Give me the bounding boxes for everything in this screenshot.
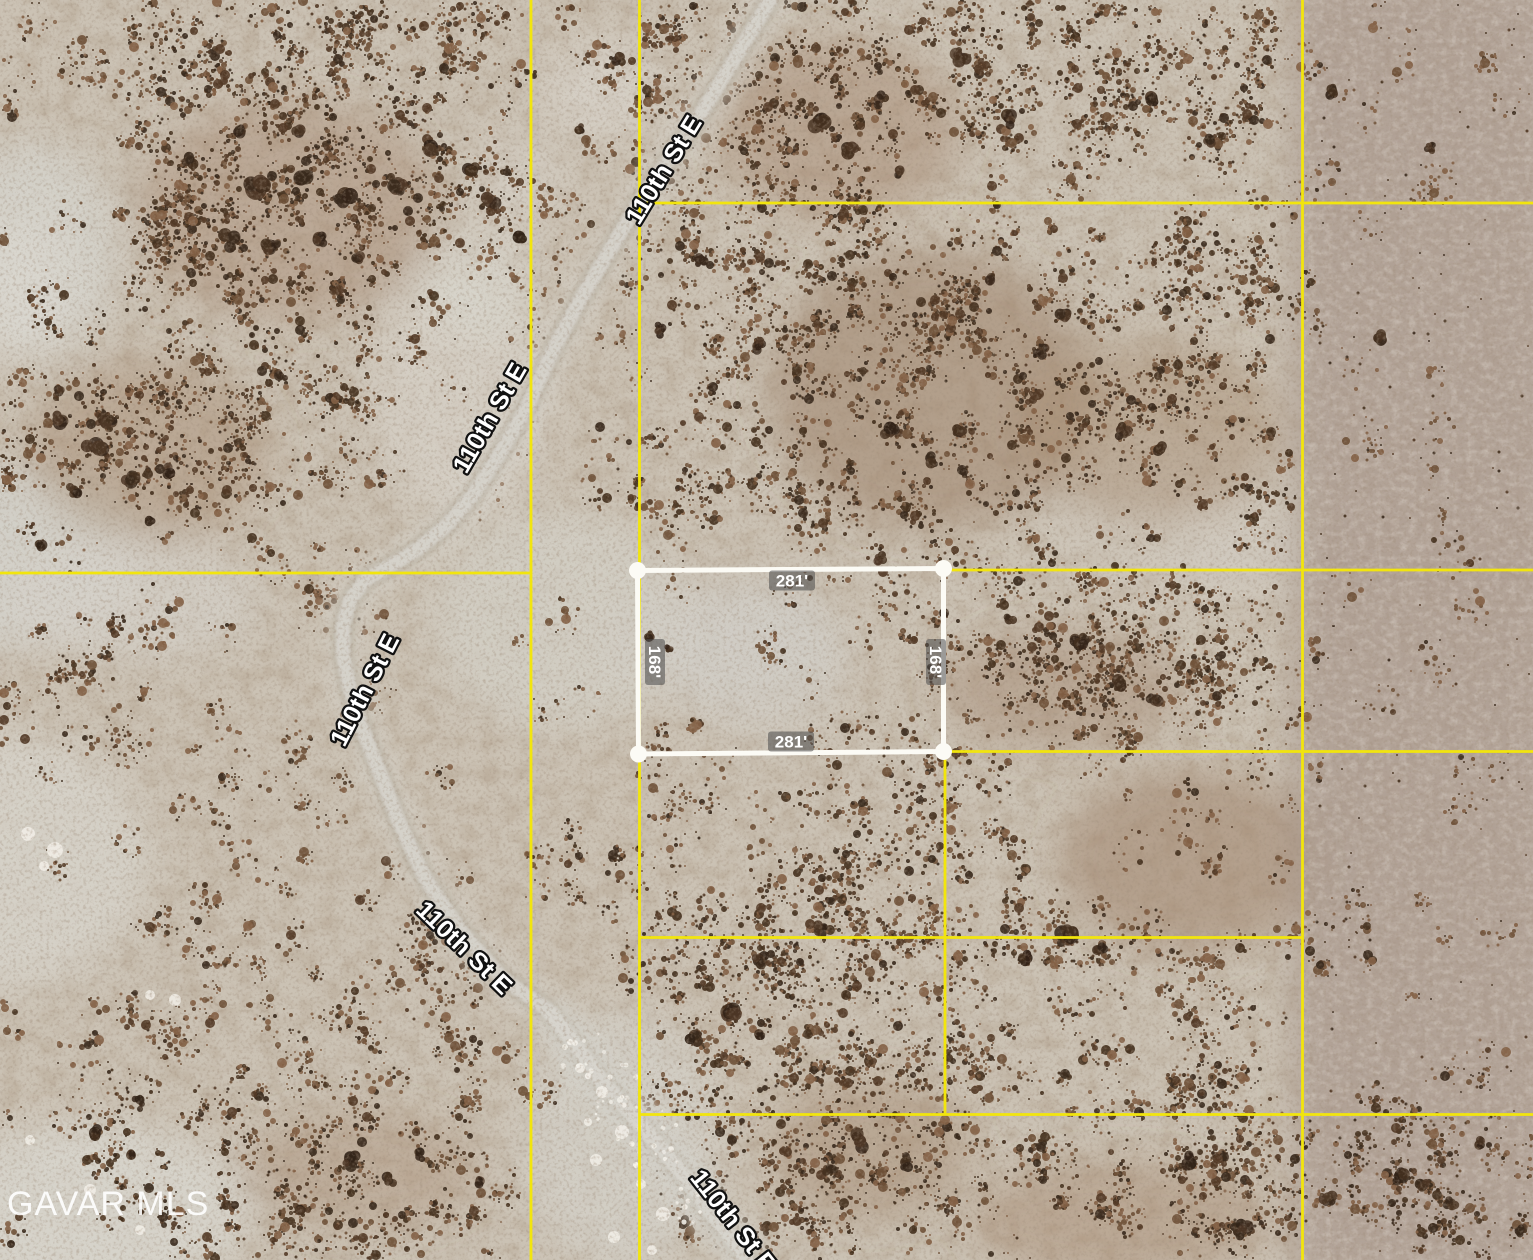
svg-text:168': 168'	[645, 646, 664, 678]
svg-text:281': 281'	[775, 733, 807, 752]
svg-text:GAVAR MLS: GAVAR MLS	[7, 1185, 209, 1223]
svg-text:281': 281'	[776, 572, 808, 591]
svg-text:168': 168'	[926, 646, 945, 678]
